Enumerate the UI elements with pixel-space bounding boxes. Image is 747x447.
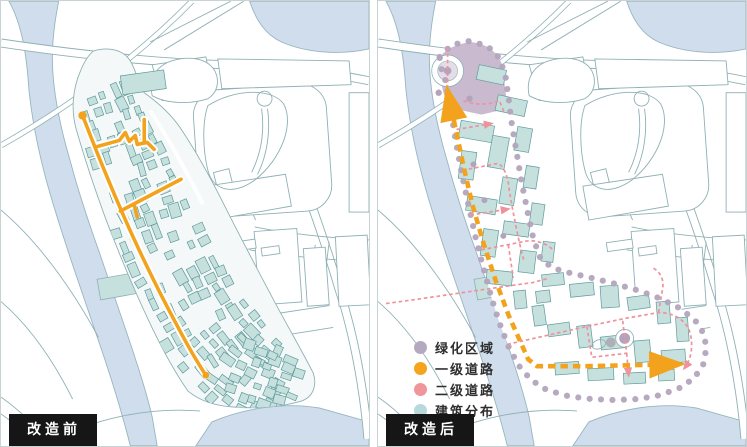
legend-item-secondary-road: 二级道路 [414,379,495,400]
legend-item-primary-road: 一级道路 [414,358,495,379]
panel-before: 改造前 [0,0,370,447]
panel-after: 绿化区域 一级道路 二级道路 建筑分布 改造后 [377,0,747,447]
legend: 绿化区域 一级道路 二级道路 建筑分布 [414,337,495,421]
green-area-swatch [414,341,427,354]
legend-item-green-area: 绿化区域 [414,337,495,358]
comparison-maps: 改造前 [0,0,747,447]
primary-road-swatch [414,362,427,375]
panel-after-label: 改造后 [386,414,474,446]
panel-before-label: 改造前 [9,414,97,446]
secondary-road-swatch [414,383,427,396]
